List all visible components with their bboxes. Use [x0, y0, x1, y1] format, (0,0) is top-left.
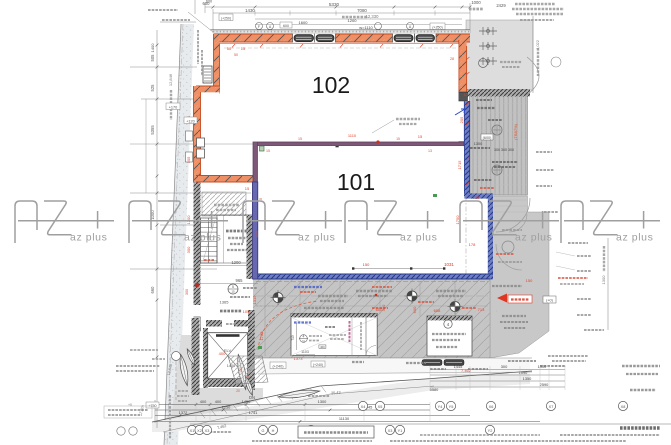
svg-text:13: 13 — [464, 92, 469, 97]
svg-text:(+250): (+250) — [221, 16, 231, 20]
svg-text:15: 15 — [245, 186, 250, 191]
svg-text:600: 600 — [283, 24, 289, 28]
svg-text:1365: 1365 — [220, 300, 230, 305]
svg-text:5355: 5355 — [150, 125, 155, 135]
svg-text:1200: 1200 — [186, 215, 191, 225]
svg-text:(+240): (+240) — [313, 363, 324, 367]
svg-text:15: 15 — [266, 149, 270, 153]
svg-text:15: 15 — [396, 137, 400, 141]
svg-text:608: 608 — [434, 308, 441, 313]
svg-text:15: 15 — [241, 46, 246, 51]
svg-text:1319: 1319 — [252, 295, 257, 305]
svg-text:1000: 1000 — [538, 364, 547, 369]
svg-text:50: 50 — [234, 53, 238, 57]
svg-text:(+250): (+250) — [432, 25, 442, 29]
svg-text:713: 713 — [291, 335, 295, 341]
svg-text:Y4: Y4 — [438, 405, 443, 409]
svg-text:Y1: Y1 — [398, 429, 403, 433]
svg-text:300 300 300: 300 300 300 — [494, 148, 514, 152]
svg-text:+120: +120 — [186, 119, 195, 123]
svg-text:(600): (600) — [483, 136, 493, 140]
svg-text:300: 300 — [501, 364, 508, 369]
svg-text:205: 205 — [255, 231, 259, 237]
svg-text:1300: 1300 — [601, 275, 606, 285]
svg-text:965: 965 — [236, 278, 244, 283]
svg-text:1000: 1000 — [471, 0, 481, 5]
svg-text:178: 178 — [469, 242, 476, 247]
svg-text:1200: 1200 — [348, 18, 358, 23]
svg-text:150: 150 — [239, 367, 243, 373]
svg-text:20: 20 — [236, 389, 240, 393]
svg-text:150: 150 — [363, 262, 370, 267]
svg-text:2429: 2429 — [496, 3, 506, 8]
svg-text:X1: X1 — [190, 429, 195, 433]
svg-text:+170: +170 — [169, 105, 178, 109]
svg-text:1430: 1430 — [245, 8, 255, 13]
svg-text:X6: X6 — [489, 405, 494, 409]
svg-text:(TR87%): (TR87%) — [513, 123, 518, 140]
svg-text:1400: 1400 — [150, 43, 155, 53]
svg-text:400: 400 — [215, 399, 222, 404]
svg-text:1600: 1600 — [299, 20, 309, 25]
svg-text:2250: 2250 — [222, 405, 231, 410]
svg-text:X3: X3 — [388, 429, 393, 433]
svg-text:525: 525 — [150, 84, 155, 92]
svg-text:32: 32 — [302, 340, 306, 344]
svg-text:w=1110: w=1110 — [359, 25, 373, 30]
svg-text:1300: 1300 — [318, 399, 327, 404]
svg-text:+0: +0 — [128, 403, 132, 407]
svg-text:128: 128 — [473, 195, 480, 200]
svg-text:505: 505 — [150, 54, 155, 62]
svg-text:X2: X2 — [197, 429, 202, 433]
svg-text:1103: 1103 — [301, 350, 309, 354]
svg-text:(+0): (+0) — [546, 299, 554, 303]
svg-text:4: 4 — [303, 335, 305, 339]
svg-text:305: 305 — [186, 156, 191, 163]
svg-text:1350: 1350 — [523, 376, 532, 381]
svg-text:1300: 1300 — [474, 142, 482, 146]
svg-text:660: 660 — [150, 286, 155, 294]
svg-text:15: 15 — [231, 290, 235, 294]
svg-text:1715: 1715 — [457, 160, 462, 170]
svg-text:1200: 1200 — [231, 260, 241, 265]
svg-text:X7: X7 — [549, 405, 554, 409]
svg-text:25,43: 25,43 — [331, 391, 341, 396]
svg-text:15: 15 — [418, 134, 423, 139]
svg-text:15: 15 — [298, 137, 302, 141]
svg-text:2590: 2590 — [540, 382, 549, 387]
svg-text:13: 13 — [428, 149, 432, 153]
svg-text:5330: 5330 — [329, 2, 340, 7]
svg-text:400: 400 — [320, 345, 325, 349]
svg-text:11130: 11130 — [339, 416, 350, 421]
svg-text:X8: X8 — [621, 405, 626, 409]
svg-text:Y2: Y2 — [488, 429, 493, 433]
svg-text:7080: 7080 — [357, 8, 367, 13]
svg-text:102: 102 — [312, 72, 350, 98]
svg-text:300: 300 — [186, 246, 191, 253]
svg-text:50: 50 — [227, 46, 232, 51]
svg-text:713: 713 — [478, 307, 485, 312]
svg-text:12,846: 12,846 — [168, 73, 173, 86]
svg-text:Y5: Y5 — [449, 405, 454, 409]
svg-text:5580: 5580 — [430, 387, 439, 392]
svg-text:H: H — [272, 429, 275, 433]
svg-text:400: 400 — [219, 351, 226, 356]
svg-text:28: 28 — [450, 57, 454, 61]
svg-text:(+240): (+240) — [272, 364, 284, 368]
svg-text:1450: 1450 — [242, 399, 251, 404]
svg-text:1373: 1373 — [294, 356, 304, 361]
svg-text:205: 205 — [459, 116, 464, 123]
svg-text:12,330: 12,330 — [366, 14, 379, 19]
svg-text:1703: 1703 — [259, 331, 264, 341]
svg-text:1110: 1110 — [348, 133, 357, 138]
svg-text:400: 400 — [200, 399, 207, 404]
svg-text:X4: X4 — [361, 405, 366, 409]
svg-text:105: 105 — [243, 309, 250, 314]
svg-text:101: 101 — [337, 169, 375, 195]
svg-text:G: G — [262, 429, 265, 433]
svg-text:X3: X3 — [205, 429, 210, 433]
svg-text:X5: X5 — [378, 405, 383, 409]
svg-text:1031: 1031 — [444, 262, 454, 267]
svg-text:300: 300 — [185, 289, 189, 295]
svg-text:5: 5 — [232, 285, 234, 289]
svg-text:600: 600 — [206, 0, 212, 4]
svg-text:1445: 1445 — [454, 364, 463, 369]
svg-text:75: 75 — [245, 375, 249, 379]
svg-text:600: 600 — [412, 306, 417, 313]
svg-text:1741: 1741 — [249, 410, 258, 415]
svg-text:1372: 1372 — [179, 410, 188, 415]
svg-text:150: 150 — [526, 278, 533, 283]
svg-text:F: F — [258, 25, 260, 29]
